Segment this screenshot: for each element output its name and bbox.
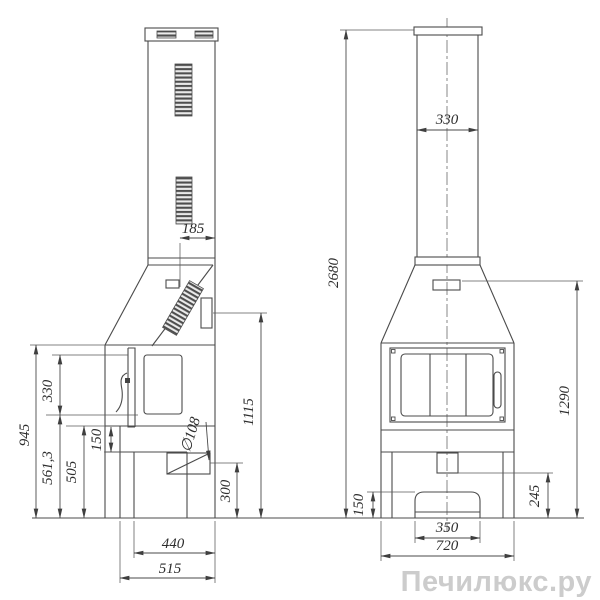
damper-slot bbox=[201, 298, 212, 328]
cap-vent-left bbox=[157, 31, 176, 38]
dim-515: 515 bbox=[159, 561, 182, 577]
chimney-pipe bbox=[417, 35, 478, 257]
front-view: 2680 330 1290 245 150 350 720 bbox=[326, 18, 583, 561]
dim-245-group: 245 bbox=[527, 473, 548, 518]
dim-330-front-group: 330 bbox=[417, 112, 478, 130]
dim-561-3-group: 561,3 bbox=[40, 415, 60, 518]
watermark: Печилюкс.ру bbox=[401, 566, 592, 598]
dim-300: 300 bbox=[218, 479, 234, 503]
hood-cone bbox=[381, 265, 514, 343]
cap-vent-right bbox=[195, 31, 213, 38]
flue-outlet-front bbox=[437, 453, 458, 473]
cone-damper-vent bbox=[433, 280, 460, 290]
door-glass bbox=[401, 354, 493, 416]
firebox-opening bbox=[144, 355, 182, 414]
door-handle-front bbox=[494, 372, 501, 408]
dim-1290-group: 1290 bbox=[462, 281, 583, 518]
door-frame bbox=[390, 348, 505, 422]
dim-720: 720 bbox=[436, 538, 459, 554]
dim-2680: 2680 bbox=[326, 258, 342, 289]
dim-150-front-group: 150 bbox=[351, 492, 415, 518]
glass-dividers bbox=[430, 354, 466, 416]
dim-350: 350 bbox=[435, 520, 459, 536]
hood-vent-frame bbox=[166, 280, 179, 288]
dim-1290: 1290 bbox=[557, 386, 573, 417]
dim-2680-group: 2680 bbox=[326, 30, 414, 518]
chimney-vent-lower bbox=[176, 177, 192, 224]
dim-440: 440 bbox=[162, 536, 185, 552]
door-corner-bolts bbox=[392, 350, 504, 421]
dim-245: 245 bbox=[527, 484, 543, 507]
dim-150-side-group: 150 bbox=[89, 427, 120, 452]
dim-185: 185 bbox=[182, 221, 205, 237]
hood-slope-outer bbox=[105, 265, 148, 345]
dim-1115: 1115 bbox=[241, 398, 257, 426]
dim-330: 330 bbox=[40, 379, 56, 403]
chimney-vent-upper bbox=[175, 64, 192, 116]
flue-outlet-stub bbox=[167, 453, 210, 474]
dim-150-side: 150 bbox=[89, 428, 105, 451]
ash-pan bbox=[415, 492, 480, 518]
pipe-bottom-collar bbox=[415, 257, 480, 265]
dim-505: 505 bbox=[64, 460, 80, 483]
dim-561-3: 561,3 bbox=[40, 451, 56, 485]
dim-330-front: 330 bbox=[435, 112, 459, 128]
side-view: 185 945 330 561,3 505 150 ∅108 bbox=[17, 28, 267, 583]
handle-pivot bbox=[125, 378, 130, 383]
dim-diameter-108: ∅108 bbox=[178, 415, 204, 454]
front-pedestal bbox=[392, 452, 503, 518]
hood-vent-grille bbox=[163, 281, 204, 336]
dim-945: 945 bbox=[17, 423, 33, 446]
technical-drawing-sheet: 185 945 330 561,3 505 150 ∅108 bbox=[0, 0, 600, 600]
dim-330-group: 330 bbox=[40, 355, 138, 415]
fireplace-drawing: 185 945 330 561,3 505 150 ∅108 bbox=[0, 0, 600, 600]
dim-150-front: 150 bbox=[351, 493, 367, 516]
chimney-flange bbox=[148, 258, 215, 265]
dim-185-group: 185 bbox=[180, 221, 215, 287]
pipe-top-collar bbox=[414, 27, 482, 35]
